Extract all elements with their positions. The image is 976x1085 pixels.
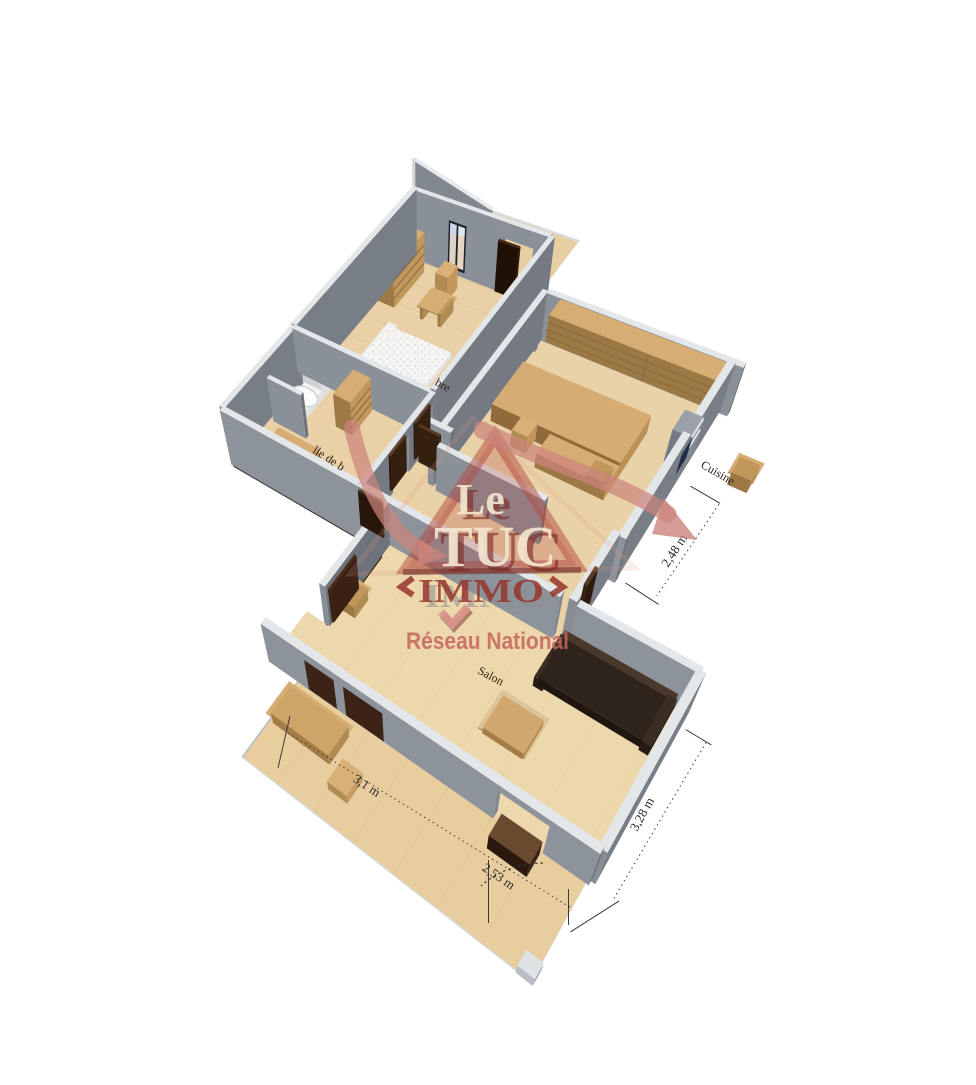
svg-text:IMMO: IMMO — [418, 573, 544, 610]
svg-text:Réseau National: Réseau National — [406, 628, 569, 655]
svg-text:TUC: TUC — [434, 514, 556, 579]
